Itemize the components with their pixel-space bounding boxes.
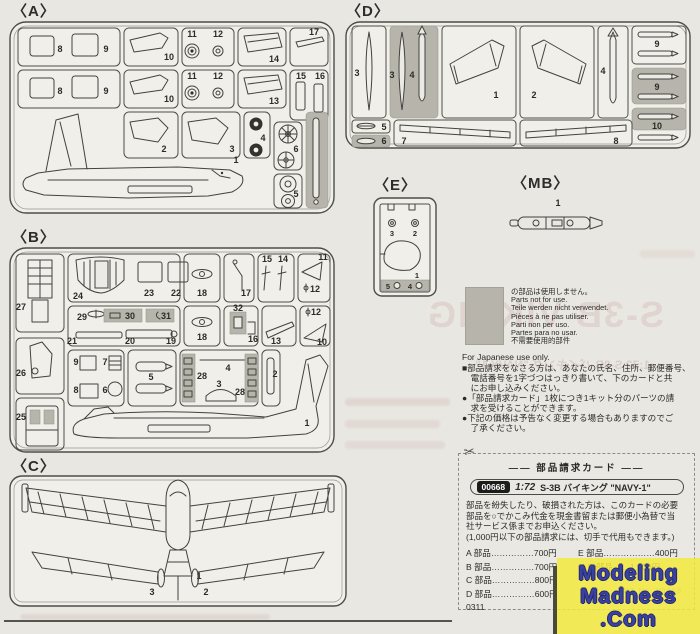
sprue-e-label: 〈E〉 — [374, 174, 417, 195]
instruction-line: 了承ください。 — [462, 423, 698, 433]
scissors-icon: ✂ — [463, 443, 476, 461]
part-number: 26 — [16, 368, 26, 378]
part-number: 6 — [102, 385, 107, 395]
part-number: 5 — [381, 122, 386, 132]
part-number: 16 — [248, 334, 258, 344]
part-number: 8 — [613, 136, 618, 146]
part-number: 12 — [213, 29, 223, 39]
part-number: 3 — [390, 229, 394, 238]
part-number: 9 — [73, 357, 78, 367]
part-number: 8 — [57, 86, 62, 96]
part-number: 32 — [233, 303, 243, 313]
part-number: 4 — [225, 363, 230, 373]
part-number: 13 — [271, 336, 281, 346]
sprue-a-label: 〈A〉 — [12, 0, 56, 21]
part-number: 1 — [493, 90, 498, 100]
bleedthrough-bar — [345, 420, 440, 428]
part-number: 1 — [304, 418, 309, 428]
sprue-mb-diagram: 1 — [502, 196, 612, 242]
part-number: 15 — [296, 71, 306, 81]
part-number: 9 — [103, 86, 108, 96]
bleedthrough-bar — [345, 441, 445, 449]
part-number: 12 — [311, 307, 321, 317]
watermark-line: Modeling — [578, 562, 678, 585]
part-number: 5 — [293, 189, 298, 199]
part-number: 7 — [102, 357, 107, 367]
part-number: 2 — [413, 229, 417, 238]
bleedthrough-bar — [345, 398, 450, 406]
part-number: 5 — [386, 282, 390, 291]
card-title: ―― 部品請求カード ―― — [466, 460, 687, 474]
sprue-c-label: 〈C〉 — [12, 455, 56, 476]
instruction-line: ■部品請求をなさる方は、あなたの氏名、住所、郵便番号、 — [462, 363, 698, 373]
part-number: 4 — [409, 70, 414, 80]
part-number: 2 — [272, 369, 277, 379]
part-number: 13 — [269, 96, 279, 106]
sprue-d-label: 〈D〉 — [346, 0, 390, 21]
part-number: 27 — [16, 302, 26, 312]
kit-scale: 1:72 — [515, 482, 535, 493]
part-number: 17 — [241, 288, 251, 298]
part-number: 11 — [318, 252, 328, 262]
sprue-b-label: 〈B〉 — [12, 226, 56, 247]
part-number: 22 — [171, 288, 181, 298]
part-number: 10 — [317, 337, 327, 347]
card-body-line: (1,000円以下の部品請求には、切手で代用もできます。) — [466, 532, 687, 543]
part-number: 18 — [197, 332, 207, 342]
part-number: 4 — [600, 66, 605, 76]
part-number: 30 — [125, 311, 135, 321]
part-number: 10 — [164, 52, 174, 62]
watermark-line: .Com — [600, 608, 657, 631]
part-number: 23 — [144, 288, 154, 298]
part-number: 3 — [149, 587, 154, 597]
part-number: 3 — [389, 70, 394, 80]
unused-note-line: 不需要使用的部件 — [511, 337, 691, 345]
part-number: 2 — [203, 587, 208, 597]
part-number: 2 — [161, 144, 166, 154]
card-body-line: 社サービス係までお申込ください。 — [466, 521, 687, 532]
part-number: 6 — [293, 144, 298, 154]
japanese-use-only-note: For Japanese use only. — [462, 352, 550, 362]
instruction-line: 電話番号を1字づつはっきり書いて、下のカードと共 — [462, 373, 698, 383]
part-number: 5 — [148, 372, 153, 382]
part-number: 1 — [233, 155, 238, 165]
part-number: 25 — [16, 412, 26, 422]
part-number: 28 — [197, 371, 207, 381]
part-number: 1 — [415, 271, 419, 280]
part-number: 24 — [73, 291, 83, 301]
part-number: 11 — [187, 29, 197, 39]
part-number: 14 — [278, 254, 288, 264]
instruction-line: ●下記の価格は予告なく変更する場合もありますのでご — [462, 413, 698, 423]
part-number: 20 — [125, 336, 135, 346]
part-number: 16 — [315, 71, 325, 81]
sprue-d-diagram: 3 3 4 1 2 4 9 9 10 5 6 7 8 — [344, 20, 692, 150]
part-number: 9 — [654, 82, 659, 92]
card-body-text: 部品を紛失したり、破損された方は、このカードの必要 部品を○でかこみ代金を現金書… — [466, 500, 687, 542]
part-number: 11 — [187, 71, 197, 81]
part-number: 18 — [197, 288, 207, 298]
part-number: 15 — [262, 254, 272, 264]
instruction-line: ●「部品請求カード」1枚につき1キット分のパーツの請 — [462, 393, 698, 403]
part-number: 31 — [161, 311, 171, 321]
unused-parts-note: の部品は使用しません。 Parts not for use. Teile wer… — [511, 288, 691, 345]
modelingmadness-watermark: Modeling Madness .Com — [557, 558, 700, 634]
part-number: 4 — [260, 133, 265, 143]
part-number: 6 — [381, 136, 386, 146]
part-number: 7 — [401, 136, 406, 146]
unused-parts-swatch — [465, 287, 504, 345]
parts-request-instructions: ■部品請求をなさる方は、あなたの氏名、住所、郵便番号、 電話番号を1字づつはっき… — [462, 363, 698, 433]
part-number: 9 — [103, 44, 108, 54]
part-number: 10 — [164, 94, 174, 104]
instruction-line: にお申し込みください。 — [462, 383, 698, 393]
kit-number-chip: 00668 — [477, 481, 511, 493]
bleedthrough-bar — [640, 250, 695, 258]
part-number: 8 — [73, 385, 78, 395]
part-number: 14 — [269, 54, 279, 64]
part-number: 12 — [213, 71, 223, 81]
watermark-line: Madness — [580, 585, 677, 608]
part-number: 3 — [229, 144, 234, 154]
instruction-sheet-page: S-3B VIKING 1:72 S-3B バイキング "NAVY-1" 〈A〉… — [0, 0, 700, 634]
part-number: 9 — [654, 39, 659, 49]
sprue-mb-label: 〈MB〉 — [512, 172, 569, 193]
sprue-e-diagram: 3 2 1 5 4 — [372, 196, 438, 298]
part-number: 12 — [310, 284, 320, 294]
instruction-line: 求を受けることができます。 — [462, 403, 698, 413]
sprue-c-diagram: 1 3 2 — [8, 474, 348, 608]
sprue-a-diagram: 8 9 10 11 12 14 17 8 9 10 11 12 13 15 16… — [8, 20, 336, 215]
kit-badge: 00668 1:72 S-3B バイキング "NAVY-1" — [470, 479, 684, 495]
part-number: 1 — [196, 571, 201, 581]
section-divider — [4, 620, 452, 622]
part-number: 17 — [309, 27, 319, 37]
part-number: 21 — [67, 336, 77, 346]
part-number: 2 — [531, 90, 536, 100]
part-number: 1 — [555, 198, 560, 208]
part-number: 19 — [166, 336, 176, 346]
part-number: 3 — [216, 379, 221, 389]
kit-name: S-3B バイキング "NAVY-1" — [540, 481, 651, 494]
sprue-b-diagram: 27 26 25 24 23 22 18 17 15 14 11 12 29 3… — [8, 246, 336, 454]
part-number: 29 — [77, 312, 87, 322]
part-number: 3 — [354, 68, 359, 78]
card-body-line: 部品を○でかこみ代金を現金書留または郵便小為替で当 — [466, 511, 687, 522]
part-number: 10 — [652, 121, 662, 131]
part-number: 8 — [57, 44, 62, 54]
card-body-line: 部品を紛失したり、破損された方は、このカードの必要 — [466, 500, 687, 511]
part-number: 28 — [235, 387, 245, 397]
